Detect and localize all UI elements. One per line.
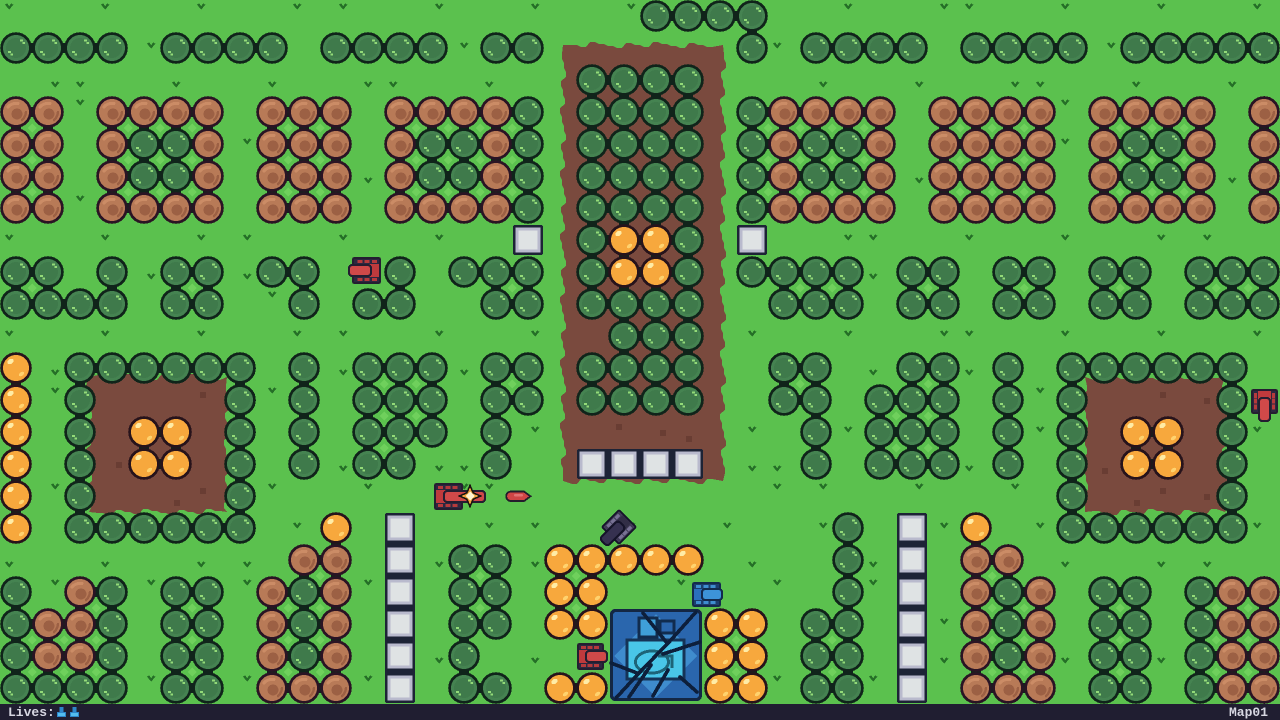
svg-text:Map01: Map01 [1229, 705, 1268, 720]
svg-text:Lives:: Lives: [8, 705, 55, 720]
